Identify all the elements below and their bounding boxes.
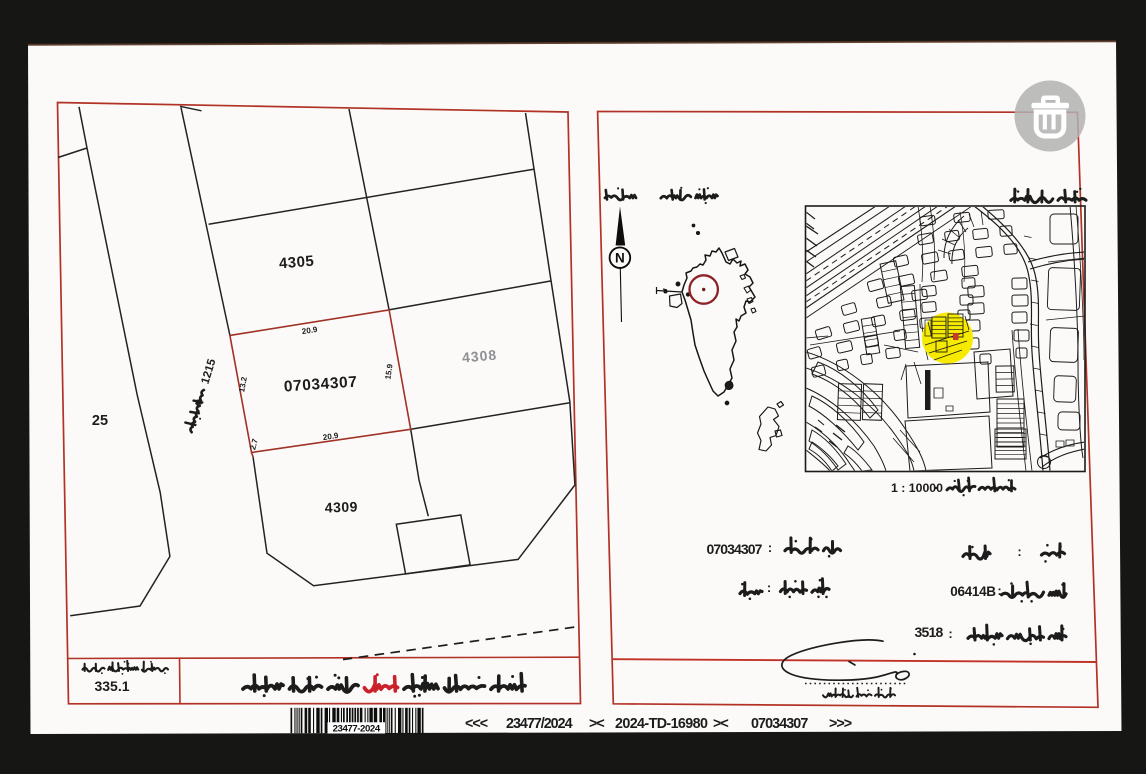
- svg-text:><: ><: [713, 716, 728, 732]
- svg-text:3518: 3518: [915, 624, 944, 640]
- svg-text:23477-2024: 23477-2024: [333, 724, 381, 735]
- svg-text::: :: [1017, 544, 1021, 559]
- svg-text:>>>: >>>: [829, 716, 852, 732]
- svg-text::: :: [948, 626, 952, 641]
- svg-text:N: N: [615, 251, 625, 266]
- svg-text:4305: 4305: [278, 253, 315, 273]
- svg-text:4309: 4309: [324, 498, 358, 515]
- svg-text:23477/2024: 23477/2024: [506, 716, 573, 732]
- svg-text::: :: [768, 540, 772, 555]
- svg-text:06414B: 06414B: [950, 584, 996, 599]
- svg-text:07034307: 07034307: [706, 541, 762, 557]
- svg-text::: :: [997, 583, 1001, 598]
- svg-text:07034307: 07034307: [751, 716, 808, 732]
- svg-text:<<<: <<<: [465, 716, 488, 732]
- svg-text:4308: 4308: [461, 347, 497, 366]
- svg-text:335.1: 335.1: [94, 678, 129, 694]
- svg-text::: :: [767, 580, 771, 595]
- svg-text:25: 25: [92, 413, 108, 429]
- svg-text:><: ><: [589, 716, 604, 732]
- svg-text:2024-TD-16980: 2024-TD-16980: [615, 716, 708, 732]
